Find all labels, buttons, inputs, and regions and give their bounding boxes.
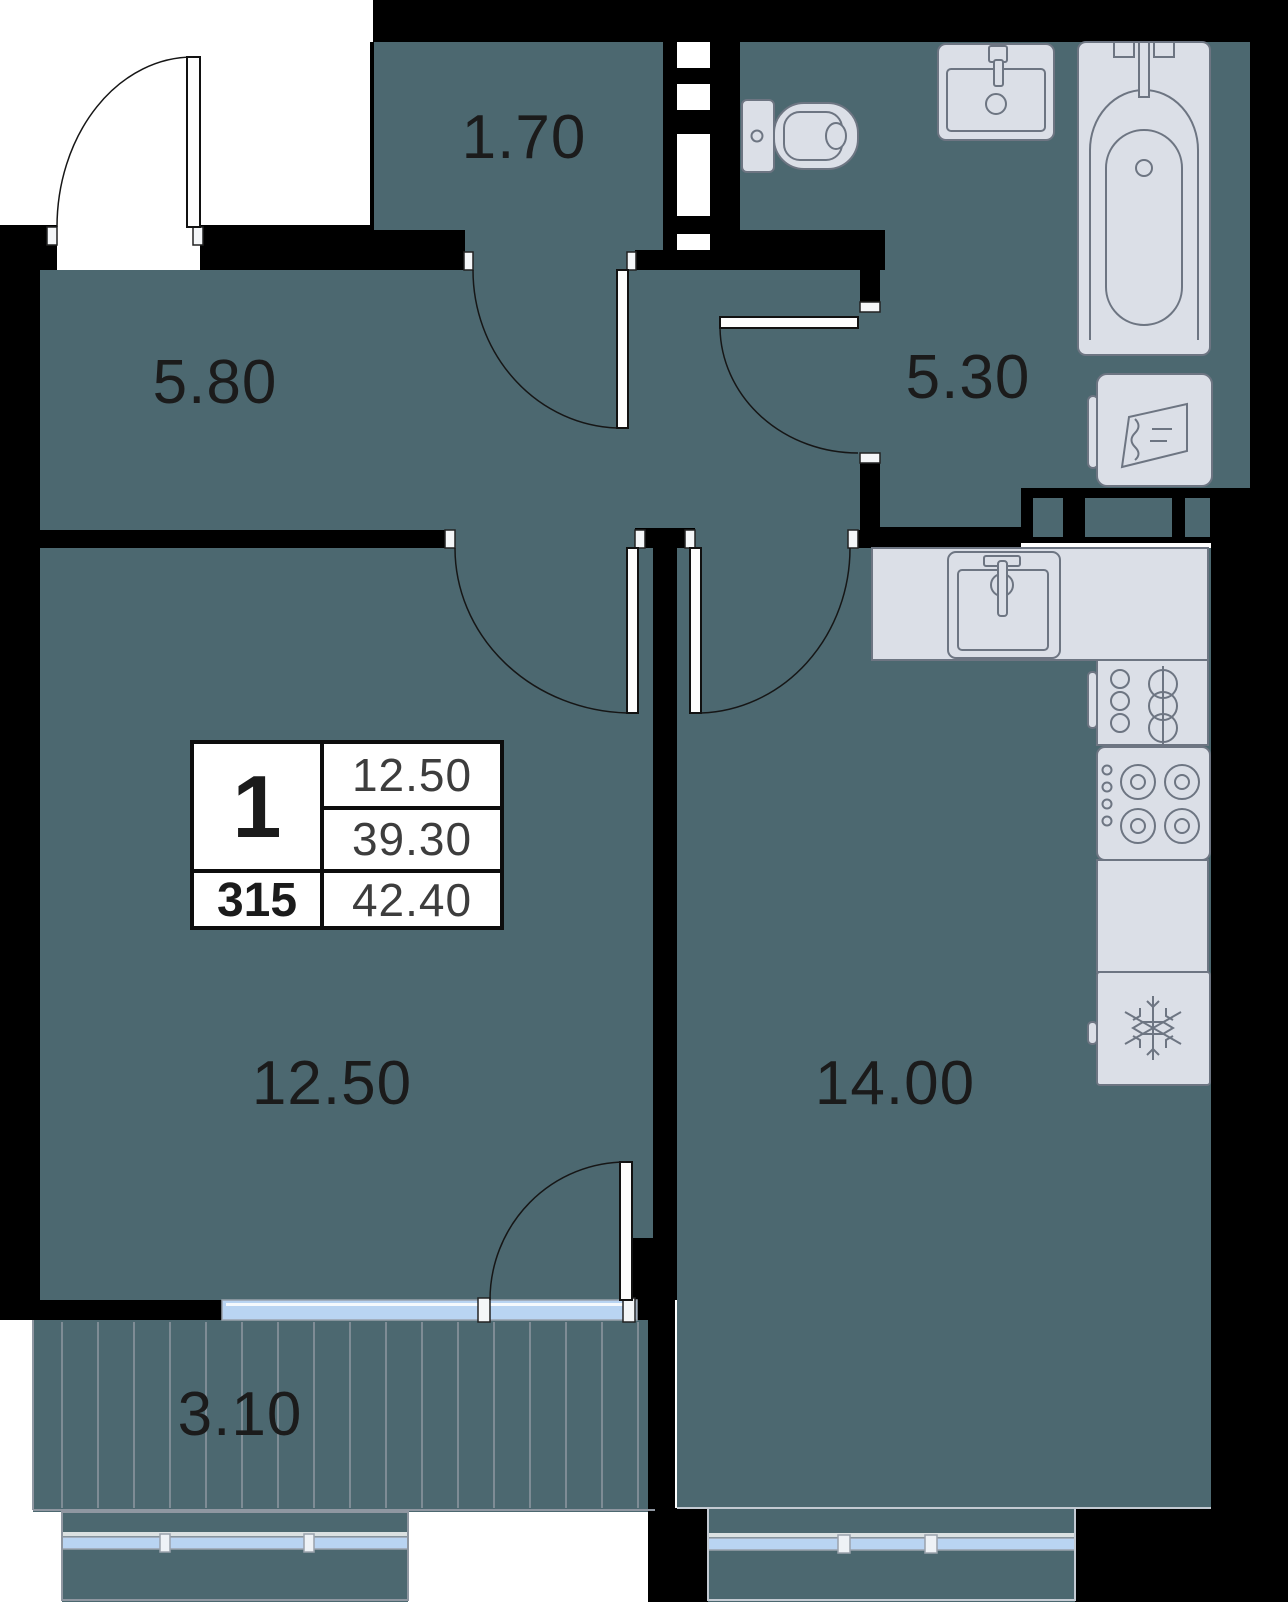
unit-number-value: 315 [217,874,297,927]
kitchen-doorway-floor [695,530,848,548]
wardrobe-area-label: 1.70 [462,103,587,172]
dish-rack-icon [1088,660,1208,745]
toilet-icon [742,100,858,172]
kitchen-sink-icon [948,552,1060,658]
bathtub-icon [1078,42,1210,355]
living-doorway-floor [455,530,635,548]
living-room-area-label: 12.50 [252,1049,412,1118]
rooms-count-value: 1 [233,757,282,856]
kitchen-door-leaf [690,548,701,713]
bathroom-area-label: 5.30 [906,343,1031,412]
info-table: 1 315 12.50 39.30 42.40 [192,742,502,928]
area-row1-value: 12.50 [352,749,472,801]
bathroom-sink-icon [938,44,1054,140]
washing-machine-icon [1088,374,1212,486]
kitchen-bay-floor [708,1508,1075,1602]
wardrobe-doorway-floor [473,230,627,270]
vent-shaft-icon [663,0,740,270]
bathroom-doorway-floor [860,312,880,463]
living-door-leaf [627,548,638,713]
stove-icon [1097,747,1210,860]
balcony-bay-floor [62,1512,408,1602]
floor-plan-drawing: 5.80 1.70 5.30 12.50 14.00 3.10 1 315 12… [0,0,1288,1602]
bathroom-door-leaf [720,317,858,328]
balcony-glazing-band [62,1537,408,1549]
entrance-door-arc [57,57,193,227]
balcony-door-leaf [620,1162,632,1300]
wardrobe-door-leaf [617,270,628,428]
balcony-area-label: 3.10 [178,1380,303,1449]
balcony-floor [33,1320,655,1512]
living-room-floor [40,548,653,1320]
hallway-area-label: 5.80 [153,348,278,417]
floor-plan: 5.80 1.70 5.30 12.50 14.00 3.10 1 315 12… [0,0,1288,1602]
area-row2-value: 39.30 [352,813,472,865]
area-row3-value: 42.40 [352,874,472,926]
kitchen-window-band [708,1538,1075,1550]
entrance-door-leaf [187,57,200,227]
kitchen-area-label: 14.00 [815,1049,975,1118]
fridge-icon [1088,972,1210,1085]
